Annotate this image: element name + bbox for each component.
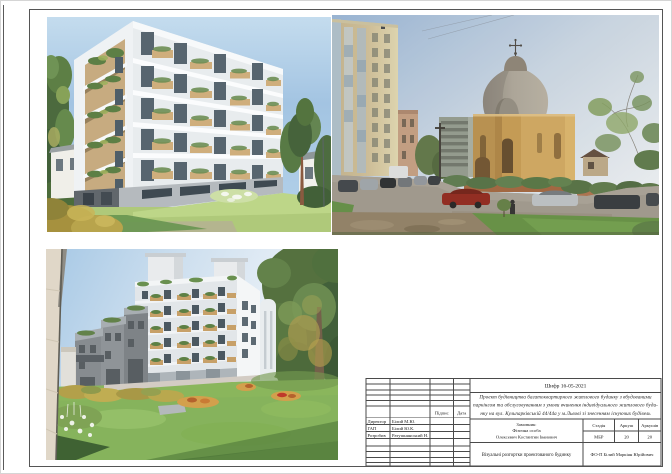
svg-text:Шифр 16-05-2021: Шифр 16-05-2021 [545,383,587,390]
svg-text:Візуальні розгортки проектован: Візуальні розгортки проектованого будинк… [482,453,572,458]
svg-text:Білий М.Ю.: Білий М.Ю. [392,419,415,424]
svg-text:Підпис: Підпис [435,410,449,415]
svg-text:Проект будівництва багатокварт: Проект будівництва багатоквартирного жит… [478,395,652,400]
svg-text:Стадія: Стадія [592,423,606,428]
svg-text:ГАП: ГАП [368,426,377,431]
svg-text:МБР: МБР [594,435,604,440]
svg-text:Олексевич Костянтин Іванович: Олексевич Костянтин Іванович [496,434,558,439]
svg-text:ФО-П Білий Маркіян Юрійович: ФО-П Білий Маркіян Юрійович [591,452,655,457]
svg-text:Ратушнянський Н.: Ратушнянський Н. [392,433,428,438]
svg-text:20: 20 [647,435,652,440]
svg-text:Директор: Директор [368,419,387,424]
svg-text:Аркуш: Аркуш [620,423,634,428]
svg-text:нку на вул. Кульпарківській 44: нку на вул. Кульпарківській 44/44а у м.Л… [480,411,651,417]
svg-text:Аркушів: Аркушів [641,423,659,428]
svg-text:Замовник:: Замовник: [516,422,536,427]
svg-text:Білий Ю.К.: Білий Ю.К. [392,426,414,431]
svg-text:паркінгом та обслуговуванням з: паркінгом та обслуговуванням з умови вчи… [473,404,658,409]
svg-text:Фізична особа: Фізична особа [512,428,540,433]
svg-text:Дата: Дата [457,410,466,415]
svg-text:Розробив: Розробив [368,433,387,438]
svg-text:20: 20 [624,435,629,440]
